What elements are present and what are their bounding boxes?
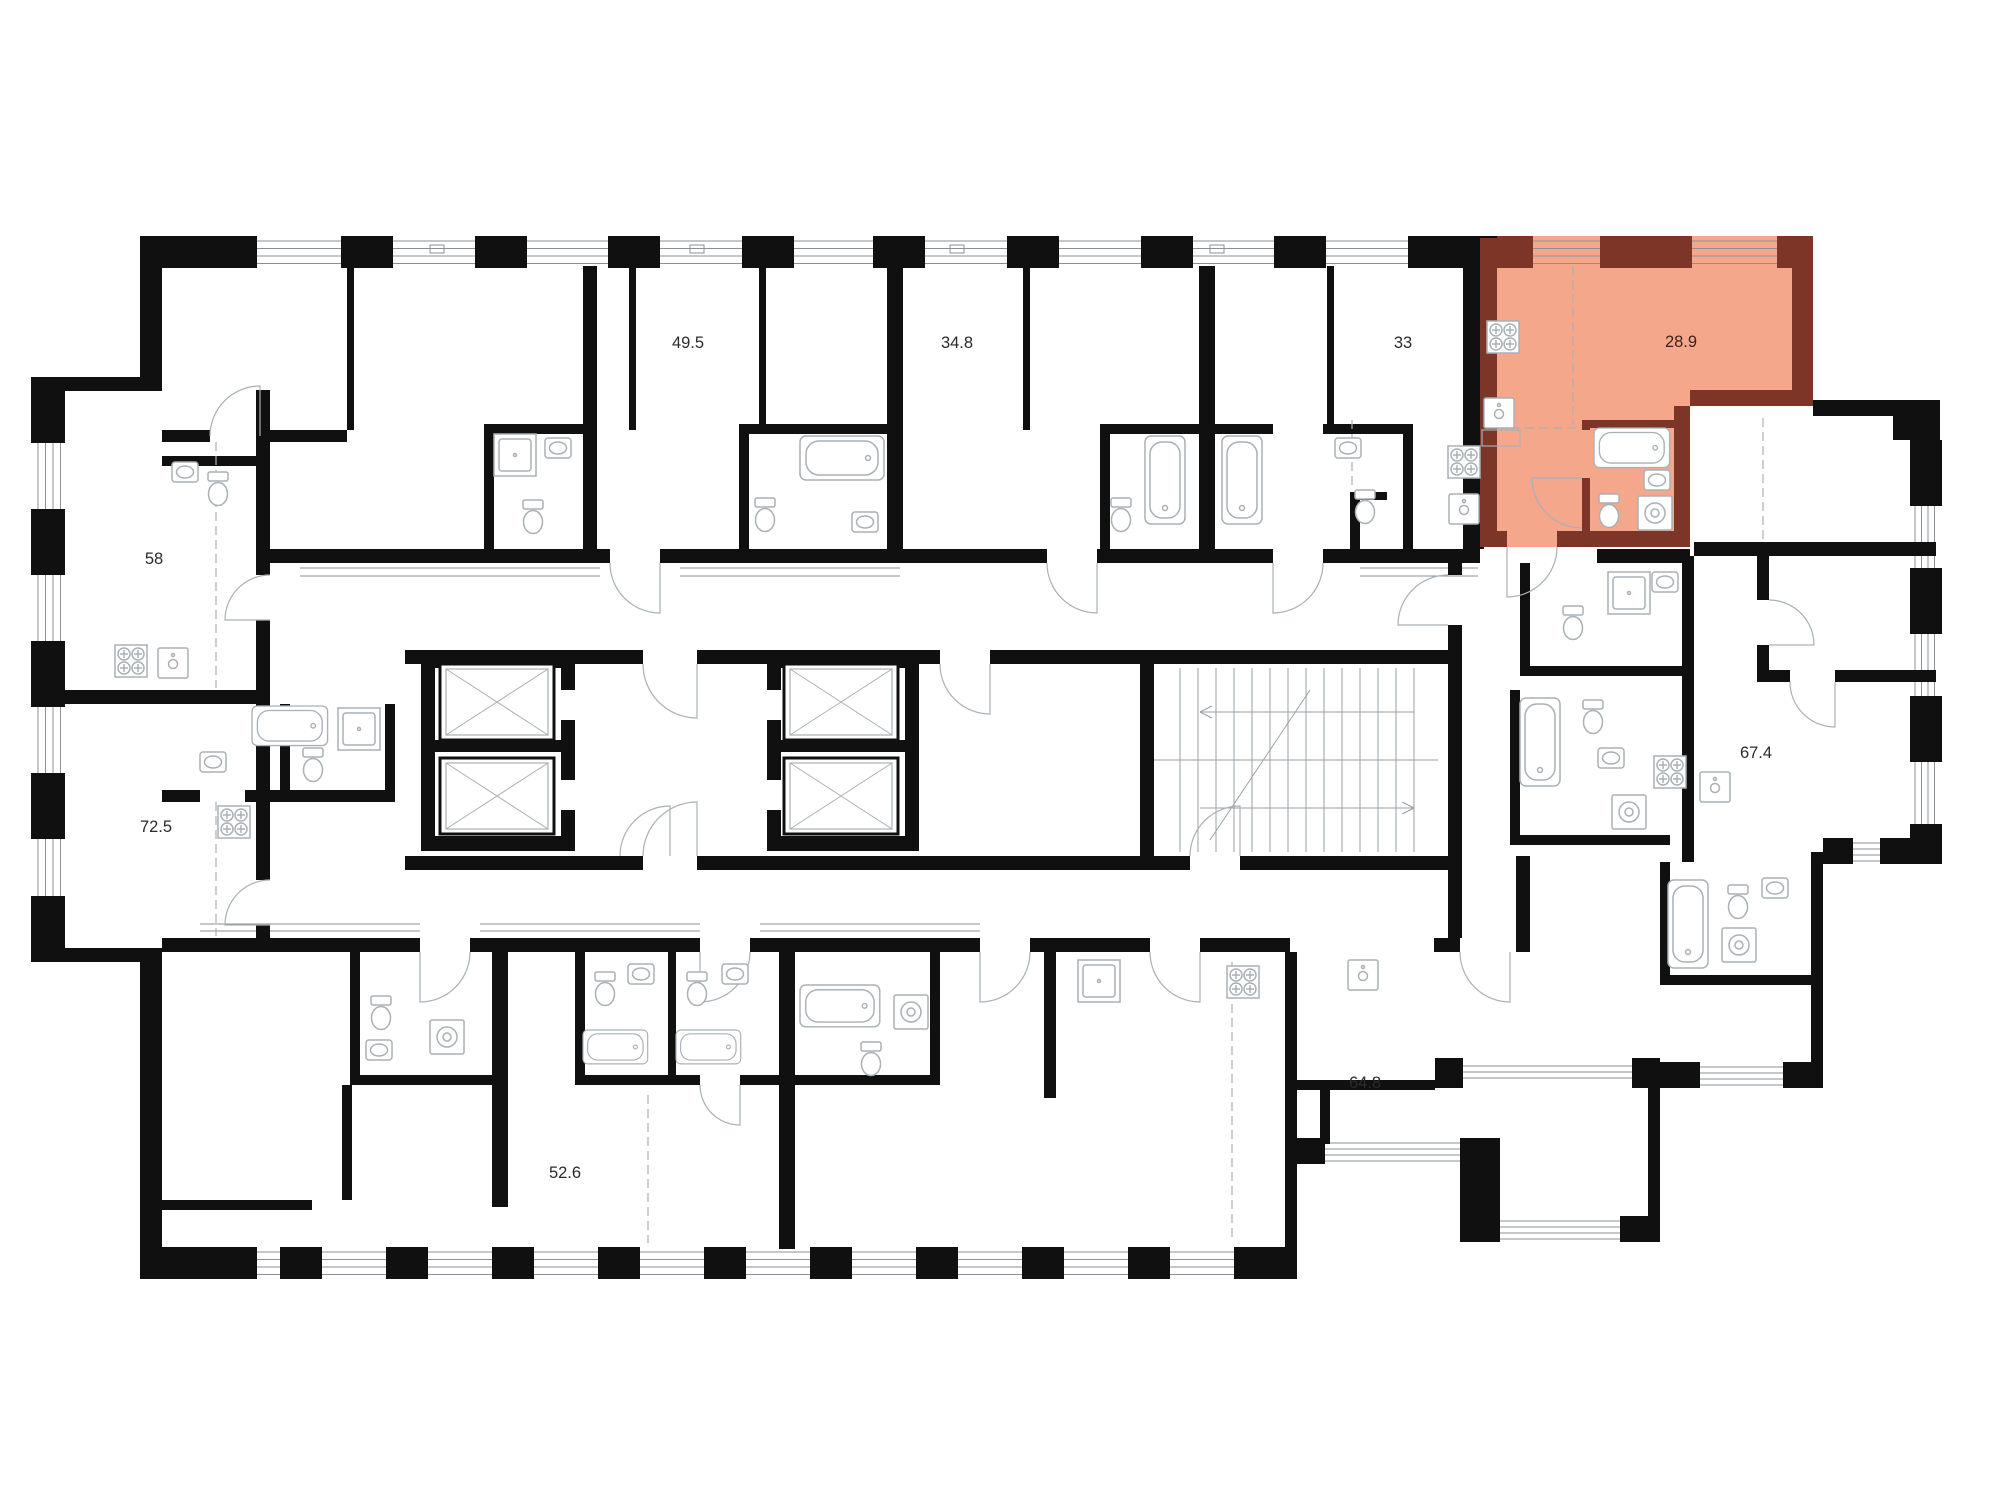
washer-icon [1638, 496, 1672, 530]
elevator-x-icon [440, 664, 554, 740]
sink-icon [852, 512, 878, 532]
sink-icon [1644, 470, 1670, 490]
sink-icon [1335, 438, 1361, 458]
door-arc-icon [980, 952, 1030, 1002]
washer-icon [1722, 928, 1756, 962]
toilet-icon [208, 472, 228, 506]
door-arc-icon [940, 664, 990, 714]
unit-58-area-label: 58 [145, 550, 163, 568]
door-arc-icon [1790, 682, 1835, 727]
shower-icon [1078, 960, 1120, 1002]
door-arc-icon [210, 386, 260, 436]
toilet-icon [523, 500, 543, 534]
bathtub-icon [1594, 428, 1670, 468]
floor-plan-svg: 49.5 34.8 33 28.9 58 72.5 67.4 64.8 52.6 [0, 0, 2000, 1512]
stairs-icon [1140, 650, 1438, 870]
shower-icon [494, 434, 536, 476]
toilet-icon [687, 972, 707, 1006]
sink-icon [722, 964, 748, 984]
unit-28.9-area-label: 28.9 [1665, 333, 1697, 351]
toilet-icon [1728, 885, 1748, 919]
door-arc-icon [225, 575, 270, 620]
floor-plan: 49.5 34.8 33 28.9 58 72.5 67.4 64.8 52.6 [0, 0, 2000, 1512]
stove-icon [1448, 446, 1480, 478]
unit-49.5-area-label: 49.5 [672, 334, 704, 352]
toilet-icon [303, 748, 323, 782]
door-arc-icon [420, 952, 470, 1002]
door-arc-icon [1769, 600, 1814, 645]
elevator-x-icon [784, 664, 898, 740]
shower-icon [338, 708, 380, 750]
sink-icon [172, 462, 198, 482]
door-arc-icon [1150, 952, 1200, 1002]
toilet-icon [1563, 606, 1583, 640]
kitchen-sink-icon [1449, 494, 1479, 524]
toilet-icon [1599, 494, 1619, 528]
stove-icon [1487, 321, 1519, 353]
bathtub-icon [800, 436, 884, 480]
unit-72.5-area-label: 72.5 [140, 818, 172, 836]
sink-icon [366, 1040, 392, 1060]
door-arc-icon [643, 664, 697, 718]
washer-icon [430, 1020, 464, 1054]
sink-icon [628, 964, 654, 984]
unit-52.6-area-label: 52.6 [549, 1164, 581, 1182]
toilet-icon [371, 996, 391, 1030]
stove-icon [1654, 756, 1686, 788]
door-arc-icon [225, 880, 270, 925]
bathtub-icon [1145, 436, 1185, 524]
bathtub-icon [676, 1030, 741, 1064]
elevator-x-icon [440, 758, 554, 834]
sink-icon [1598, 748, 1624, 768]
bathtub-icon [1222, 436, 1262, 524]
toilet-icon [595, 972, 615, 1006]
toilet-icon [1111, 498, 1131, 532]
door-arc-icon [620, 806, 670, 856]
door-arc-icon [1398, 575, 1448, 625]
washer-icon [1612, 795, 1646, 829]
toilet-icon [1583, 700, 1603, 734]
sink-icon [200, 752, 226, 772]
kitchen-sink-icon [1348, 960, 1378, 990]
sink-icon [1652, 572, 1678, 592]
elevator-x-icon [784, 758, 898, 834]
bathtub-icon [583, 1030, 648, 1064]
stove-icon [115, 645, 147, 677]
door-arc-icon [1507, 547, 1557, 597]
bathtub-icon [1520, 698, 1560, 786]
shower-icon [1608, 572, 1650, 614]
bathtub-icon [800, 985, 880, 1027]
unit-33-area-label: 33 [1394, 334, 1412, 352]
door-arc-icon [1273, 563, 1323, 613]
toilet-icon [861, 1042, 881, 1076]
bathtub-icon [1668, 880, 1708, 968]
door-arc-icon [1460, 952, 1510, 1002]
unit-67.4-area-label: 67.4 [1740, 744, 1772, 762]
washer-icon [894, 995, 928, 1029]
kitchen-sink-icon [158, 648, 188, 678]
door-arc-icon [1047, 563, 1097, 613]
kitchen-sink-icon [1700, 772, 1730, 802]
bathtub-icon [252, 706, 328, 746]
stove-icon [1227, 966, 1259, 998]
door-arc-icon [700, 1085, 740, 1125]
kitchen-sink-icon [1484, 398, 1514, 428]
toilet-icon [755, 498, 775, 532]
toilet-icon [1355, 490, 1375, 524]
sink-icon [1762, 878, 1788, 898]
unit-34.8-area-label: 34.8 [941, 334, 973, 352]
door-arc-icon [610, 563, 660, 613]
sink-icon [545, 438, 571, 458]
unit-64.8-area-label: 64.8 [1349, 1074, 1381, 1092]
stove-icon [218, 806, 250, 838]
